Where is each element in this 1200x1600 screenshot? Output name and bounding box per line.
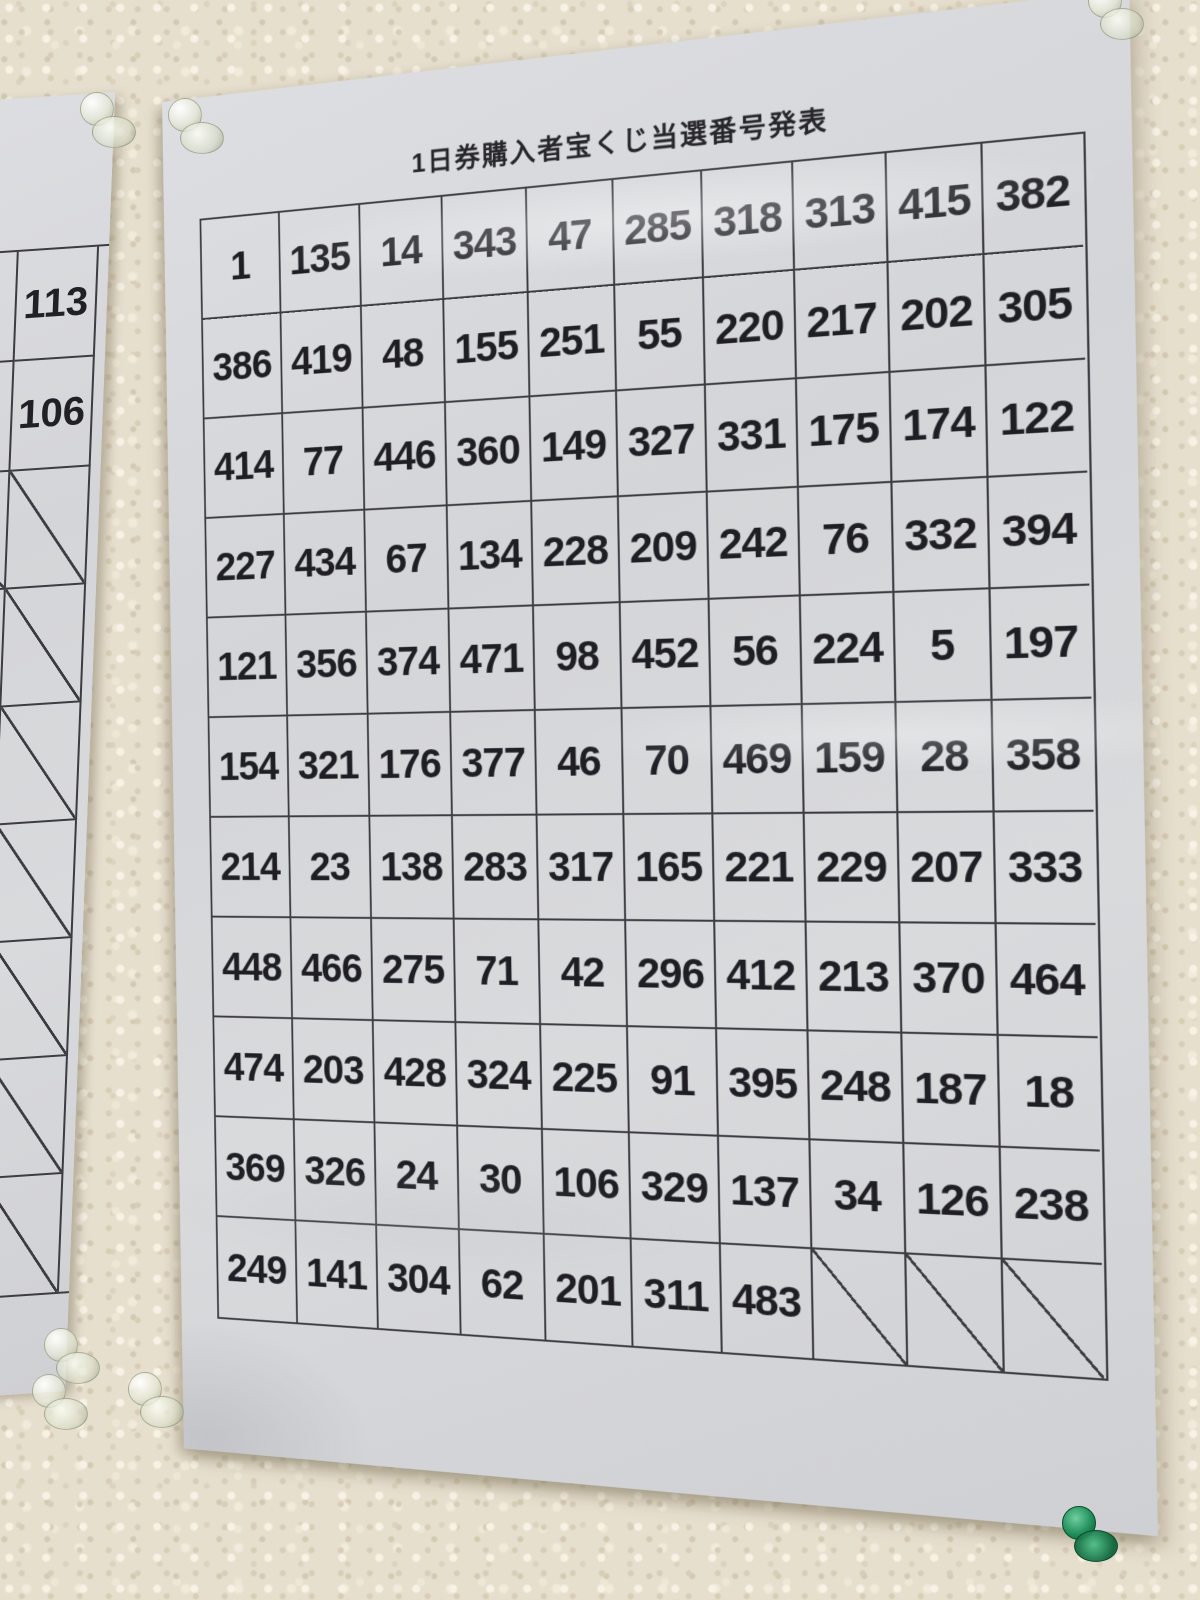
winning-number-cell: 224 bbox=[801, 593, 897, 705]
winning-number-cell: 126 bbox=[904, 1144, 1002, 1260]
winning-number-cell: 149 bbox=[530, 391, 618, 501]
winning-number-cell: 71 bbox=[455, 920, 541, 1025]
winning-number-cell: 165 bbox=[624, 814, 715, 921]
empty-slashed-cell bbox=[0, 702, 82, 825]
winning-number-cell: 343 bbox=[442, 188, 528, 299]
winning-number-cell: 42 bbox=[539, 920, 628, 1027]
empty-slashed-cell bbox=[0, 820, 77, 943]
winning-number-cell: 238 bbox=[1001, 1148, 1102, 1265]
winning-number-cell: 175 bbox=[797, 373, 893, 488]
winning-number-cell: 483 bbox=[721, 1244, 814, 1358]
winning-number-cell: 313 bbox=[793, 153, 888, 271]
winning-number-cell: 324 bbox=[456, 1023, 543, 1130]
winning-number-cell: 122 bbox=[987, 360, 1088, 478]
left-sheet-number-table: 11132106 bbox=[0, 244, 109, 1307]
winning-number-cell: 67 bbox=[365, 506, 449, 612]
table-row: 1113 bbox=[0, 246, 109, 369]
table-row: 21423138283317165221229207333 bbox=[211, 812, 1098, 925]
winning-number-cell: 214 bbox=[211, 817, 291, 918]
winning-number-cell: 471 bbox=[449, 606, 535, 712]
winning-number-cell: 197 bbox=[991, 586, 1092, 701]
winning-number-cell: 176 bbox=[369, 713, 453, 817]
pushpin-base bbox=[44, 1398, 88, 1430]
winning-number-cell: 5 bbox=[894, 589, 992, 703]
winning-number-cell: 412 bbox=[715, 922, 808, 1032]
winning-numbers-table: 1135143434728531831341538238641948155251… bbox=[200, 131, 1109, 1381]
winning-number-cell: 98 bbox=[534, 603, 623, 711]
winning-number-cell: 207 bbox=[898, 813, 996, 925]
winning-number-cell: 155 bbox=[444, 293, 530, 403]
winning-number-cell: 318 bbox=[702, 162, 795, 278]
empty-slashed-cell bbox=[0, 1174, 63, 1297]
winning-number-cell: 48 bbox=[362, 300, 446, 409]
winning-number-cell: 331 bbox=[706, 379, 799, 492]
winning-number-cell: 134 bbox=[448, 502, 534, 610]
stucco-wall-background: 11132106 1日券購入者宝くじ当選番号発表 113514343472853… bbox=[0, 0, 1200, 1600]
table-row bbox=[0, 584, 96, 715]
winning-number-cell: 76 bbox=[799, 483, 895, 597]
winning-number-cell: 14 bbox=[360, 197, 444, 307]
winning-number-cell: 333 bbox=[995, 812, 1096, 925]
winning-number-cell: 448 bbox=[213, 918, 293, 1020]
winning-number-cell: 23 bbox=[290, 817, 372, 919]
winning-number-cell: 446 bbox=[363, 403, 447, 511]
winning-number-cell: 311 bbox=[632, 1239, 723, 1351]
winning-number-cell: 228 bbox=[532, 497, 620, 606]
empty-slashed-cell bbox=[1003, 1260, 1104, 1379]
table-row: 2106 bbox=[0, 356, 105, 479]
table-row: 154321176377467046915928358 bbox=[209, 699, 1095, 818]
winning-number-cell: 28 bbox=[896, 701, 994, 813]
winning-number-cell: 327 bbox=[617, 385, 708, 497]
table-row bbox=[0, 937, 83, 1068]
main-lottery-sheet: 1日券購入者宝くじ当選番号発表 113514343472853183134153… bbox=[162, 0, 1158, 1536]
winning-number-cell: 415 bbox=[887, 144, 985, 263]
winning-number-cell: 77 bbox=[283, 409, 365, 515]
winning-number-cell: 1 bbox=[201, 213, 281, 320]
winning-number-cell: 414 bbox=[205, 414, 285, 519]
winning-number-cell: 469 bbox=[711, 705, 804, 814]
winning-number-cell: 394 bbox=[989, 473, 1090, 590]
winning-number-cell: 106 bbox=[543, 1130, 632, 1240]
winning-number-cell: 360 bbox=[446, 397, 532, 506]
empty-slashed-cell bbox=[0, 1056, 68, 1179]
pushpin-clear-icon bbox=[126, 1372, 184, 1434]
winning-number-cell: 434 bbox=[285, 511, 367, 616]
table-row bbox=[0, 819, 87, 950]
winning-number-cell: 356 bbox=[286, 613, 368, 717]
winning-number-cell: 135 bbox=[280, 205, 362, 314]
winning-number-cell: 249 bbox=[217, 1217, 298, 1322]
winning-number-cell: 227 bbox=[206, 515, 286, 619]
winning-number-cell: 374 bbox=[367, 609, 451, 714]
winning-number-cell: 358 bbox=[993, 699, 1094, 813]
winning-number-cell: 369 bbox=[216, 1117, 296, 1221]
empty-slashed-cell bbox=[6, 466, 91, 589]
winning-number-cell: 30 bbox=[458, 1127, 545, 1235]
winning-number-cell: 213 bbox=[807, 923, 903, 1034]
pushpin-clear-icon bbox=[166, 98, 224, 160]
winning-number-cell: 91 bbox=[628, 1027, 719, 1137]
empty-slashed-cell bbox=[906, 1254, 1004, 1371]
winning-number-cell: 159 bbox=[803, 703, 899, 814]
winning-number-cell: 251 bbox=[529, 286, 617, 398]
winning-number-cell: 370 bbox=[900, 923, 998, 1036]
pushpin-base bbox=[1074, 1530, 1118, 1562]
table-row bbox=[0, 1055, 78, 1186]
winning-number-cell: 305 bbox=[985, 247, 1086, 367]
winning-number-cell: 466 bbox=[291, 918, 373, 1021]
winning-number-cell: 217 bbox=[795, 263, 890, 379]
pushpin-green-icon bbox=[1060, 1506, 1118, 1568]
winning-number-cell: 202 bbox=[889, 255, 987, 373]
winning-number-cell: 203 bbox=[293, 1019, 375, 1123]
empty-slashed-cell bbox=[0, 938, 72, 1061]
winning-number-cell: 275 bbox=[372, 919, 456, 1023]
winning-number-cell: 138 bbox=[370, 816, 454, 919]
winning-number-cell: 419 bbox=[281, 307, 363, 414]
empty-slashed-cell bbox=[1, 584, 86, 707]
winning-number-cell: 317 bbox=[538, 815, 627, 921]
table-row bbox=[0, 702, 92, 833]
winning-number-cell: 386 bbox=[203, 313, 283, 419]
winning-number-cell: 56 bbox=[710, 596, 803, 707]
winning-number-cell: 62 bbox=[460, 1230, 547, 1340]
winning-number-cell: 55 bbox=[615, 278, 706, 391]
winning-number-cell: 141 bbox=[296, 1221, 378, 1328]
winning-number-cell: 106 bbox=[10, 356, 94, 471]
winning-number-cell: 221 bbox=[713, 814, 806, 923]
pushpin-base bbox=[180, 122, 224, 154]
winning-number-cell: 329 bbox=[630, 1133, 721, 1244]
winning-number-cell: 283 bbox=[453, 816, 539, 921]
winning-number-cell: 174 bbox=[891, 366, 989, 482]
winning-number-cell: 18 bbox=[999, 1036, 1100, 1152]
winning-number-cell: 428 bbox=[374, 1021, 458, 1126]
winning-number-cell: 137 bbox=[719, 1137, 812, 1250]
winning-number-cell: 24 bbox=[375, 1123, 459, 1230]
winning-number-cell: 34 bbox=[810, 1140, 906, 1254]
winning-number-cell: 47 bbox=[527, 180, 615, 293]
winning-number-cell: 46 bbox=[536, 709, 625, 816]
winning-number-cell: 187 bbox=[902, 1034, 1000, 1148]
winning-number-cell: 474 bbox=[214, 1017, 294, 1120]
table-row bbox=[0, 466, 101, 597]
winning-number-cell: 326 bbox=[295, 1120, 377, 1225]
winning-number-cell: 248 bbox=[809, 1031, 905, 1144]
pushpin-clear-icon bbox=[78, 92, 136, 154]
pushpin-clear-icon bbox=[1086, 0, 1144, 46]
table-row bbox=[0, 1173, 73, 1304]
winning-number-cell: 70 bbox=[622, 707, 713, 815]
winning-number-cell: 332 bbox=[893, 478, 991, 593]
winning-number-cell: 304 bbox=[377, 1226, 462, 1334]
winning-number-cell: 220 bbox=[704, 271, 797, 386]
winning-number-cell: 452 bbox=[621, 600, 712, 709]
winning-number-cell: 229 bbox=[805, 813, 901, 923]
empty-slashed-cell bbox=[812, 1249, 908, 1365]
winning-number-cell: 382 bbox=[983, 134, 1084, 255]
winning-number-cell: 377 bbox=[451, 711, 537, 816]
winning-number-cell: 395 bbox=[717, 1029, 810, 1140]
pushpin-base bbox=[1100, 8, 1144, 40]
pushpin-clear-icon bbox=[30, 1374, 88, 1436]
winning-number-cell: 464 bbox=[997, 924, 1098, 1038]
left-lottery-sheet: 11132106 bbox=[0, 92, 115, 1404]
winning-number-cell: 113 bbox=[15, 247, 99, 362]
winning-number-cell: 321 bbox=[288, 715, 370, 818]
winning-number-cell: 209 bbox=[619, 493, 710, 604]
winning-number-cell: 154 bbox=[209, 716, 289, 817]
winning-number-cell: 242 bbox=[708, 488, 801, 600]
winning-number-cell: 225 bbox=[541, 1025, 630, 1133]
pushpin-base bbox=[140, 1396, 184, 1428]
winning-number-cell: 285 bbox=[613, 171, 704, 285]
pushpin-base bbox=[92, 116, 136, 148]
winning-number-cell: 121 bbox=[208, 616, 288, 719]
winning-number-cell: 201 bbox=[545, 1235, 634, 1346]
winning-number-cell: 296 bbox=[626, 921, 717, 1029]
